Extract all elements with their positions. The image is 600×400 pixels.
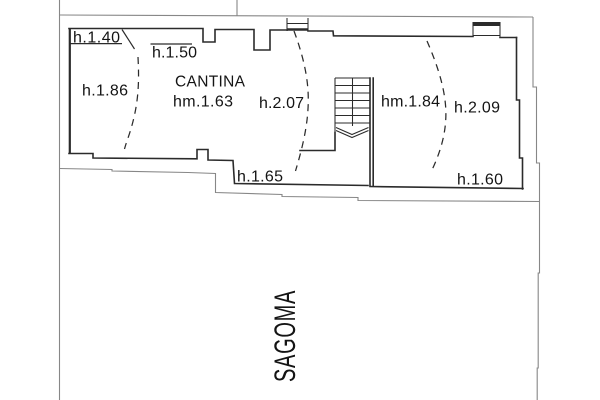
stair-right-wall — [370, 78, 373, 186]
window-opening-right — [473, 22, 500, 37]
height-label-top-center: h.1.50 — [152, 45, 197, 62]
height-label-center: h.2.07 — [259, 95, 304, 112]
h140-leader-diagonal — [122, 30, 135, 50]
bottom-left-wall — [69, 150, 368, 186]
stair-direction-arrow — [336, 128, 369, 138]
height-label-right-of-stairs: hm.1.84 — [381, 94, 440, 111]
sagoma-outline-label: SAGOMA — [269, 290, 302, 382]
height-label-top-left: h.1.40 — [73, 30, 120, 47]
room-name-label: CANTINA — [175, 74, 246, 91]
right-wall — [517, 38, 523, 190]
height-label-bottom-center: h.1.65 — [237, 169, 283, 186]
room-mean-height-label: hm.1.63 — [173, 94, 233, 111]
sagoma-top-line — [60, 15, 534, 17]
staircase — [335, 78, 373, 186]
height-label-right: h.2.09 — [454, 100, 500, 117]
dashed-zone-line-left — [125, 57, 139, 149]
basement-plan-svg: h.1.40 h.1.50 h.1.86 CANTINA hm.1.63 h.2… — [0, 0, 600, 400]
height-label-left: h.1.86 — [82, 83, 128, 100]
height-label-bottom-right: h.1.60 — [457, 172, 503, 189]
window-sill — [473, 22, 500, 26]
window-opening-left — [287, 18, 308, 31]
sagoma-right-boundary-line — [533, 17, 540, 400]
floor-plan-drawing: h.1.40 h.1.50 h.1.86 CANTINA hm.1.63 h.2… — [0, 0, 600, 400]
top-wall-center — [308, 31, 473, 37]
